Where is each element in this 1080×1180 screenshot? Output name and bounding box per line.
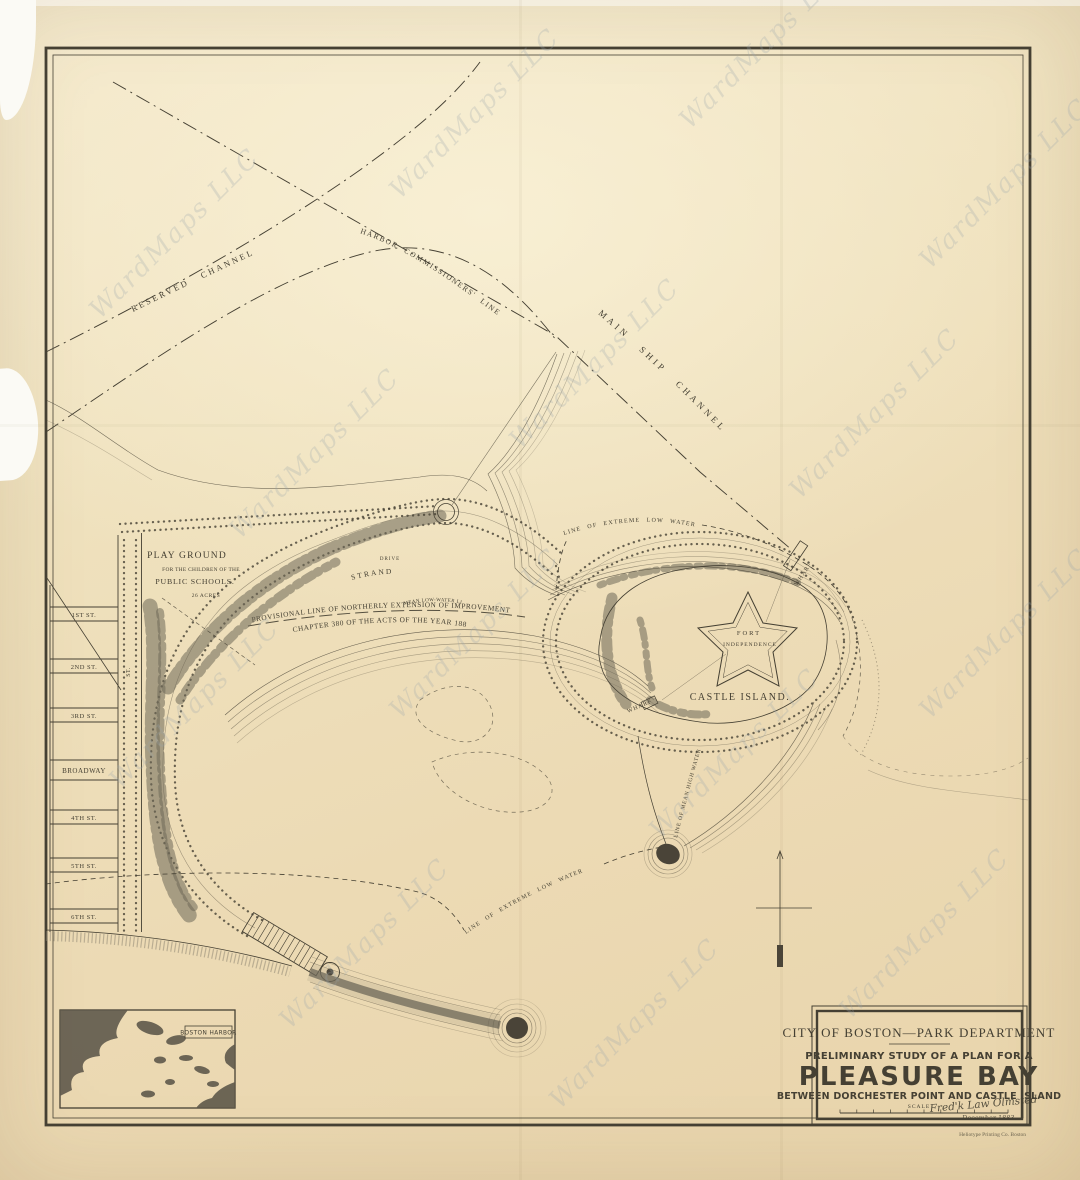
scale-label: SCALE	[908, 1104, 930, 1110]
street-label-4th: 4TH ST.	[71, 815, 97, 822]
title-subtitle: PRELIMINARY STUDY OF A PLAN FOR A	[805, 1051, 1033, 1062]
title-block: CITY OF BOSTON—PARK DEPARTMENT PRELIMINA…	[777, 1006, 1061, 1138]
svg-text:WardMaps LLC: WardMaps LLC	[914, 93, 1080, 275]
street-label-3rd: 3RD ST.	[71, 713, 97, 720]
extreme-low-water-south-label: LINE OF EXTREME LOW WATER	[464, 868, 585, 935]
svg-text:WardMaps LLC: WardMaps LLC	[834, 843, 1016, 1025]
foliage-plantings	[150, 516, 798, 916]
street-label-5th: 5TH ST.	[71, 863, 97, 870]
provisional-line-label-2: CHAPTER 380 OF THE ACTS OF THE YEAR 1883…	[0, 0, 468, 634]
title-department: CITY OF BOSTON—PARK DEPARTMENT	[783, 1025, 1056, 1040]
street-label-2nd: 2ND ST.	[71, 664, 98, 671]
shoreline-northwest	[46, 400, 487, 491]
inset-label: BOSTON HARBOR	[180, 1031, 236, 1037]
inset-map: BOSTON HARBOR	[60, 1010, 237, 1108]
street-label-1st: 1ST ST.	[72, 612, 97, 619]
survey-cross	[756, 851, 812, 967]
svg-text:WardMaps LLC: WardMaps LLC	[384, 23, 566, 205]
svg-text:WardMaps LLC: WardMaps LLC	[224, 363, 406, 545]
playground-title: PLAY GROUND	[147, 551, 227, 561]
channel-lines: RESERVED CHANNEL HARBOR COMMISSIONERS' L…	[46, 62, 792, 550]
drive-label: DRIVE	[380, 557, 400, 562]
playground-line2: FOR THE CHILDREN OF THE	[162, 567, 240, 573]
fort-label-line1: FORT	[737, 630, 761, 637]
strand-label: STRAND	[350, 567, 393, 582]
strand-boulevard: STRAND DRIVE	[151, 499, 564, 936]
playground-line3: PUBLIC SCHOOLS.	[155, 577, 234, 586]
svg-text:WardMaps LLC: WardMaps LLC	[384, 543, 566, 725]
harbor-commissioners-label: HARBOR COMMISSIONERS' LINE	[359, 226, 502, 317]
svg-text:WardMaps LLC: WardMaps LLC	[104, 613, 286, 795]
svg-text:WardMaps LLC: WardMaps LLC	[644, 663, 826, 845]
spit-south-of-island: LINE OF MEAN HIGH WATER	[638, 702, 832, 878]
svg-text:WardMaps LLC: WardMaps LLC	[914, 543, 1080, 725]
svg-text:WardMaps LLC: WardMaps LLC	[674, 0, 856, 135]
rock-islet	[653, 840, 682, 867]
svg-text:WardMaps LLC: WardMaps LLC	[544, 933, 726, 1115]
playground-acres: 26 ACRES	[192, 593, 221, 599]
street-label-6th: 6TH ST.	[71, 914, 97, 921]
svg-text:WardMaps LLC: WardMaps LLC	[84, 143, 266, 325]
svg-text:WardMaps LLC: WardMaps LLC	[784, 323, 966, 505]
inset-land	[60, 1010, 235, 1108]
map-drawing: RESERVED CHANNEL HARBOR COMMISSIONERS' L…	[0, 0, 1080, 1180]
fort-independence: FORT INDEPENDENCE	[698, 592, 797, 686]
watermarks: WardMaps LLC WardMaps LLC WardMaps LLC W…	[84, 0, 1080, 1115]
street-label-broadway: BROADWAY	[62, 767, 106, 775]
signature-date: December 1883.	[961, 1114, 1017, 1122]
imprint: Heliotype Printing Co. Boston	[959, 1132, 1026, 1138]
street-label-vertical: ST.	[126, 667, 132, 677]
fort-label-line2: INDEPENDENCE	[723, 642, 777, 648]
breakwater-head	[506, 1017, 528, 1039]
map-sheet: RESERVED CHANNEL HARBOR COMMISSIONERS' L…	[0, 0, 1080, 1180]
title-main: PLEASURE BAY	[799, 1062, 1039, 1092]
street-grid: 1ST ST. 2ND ST. 3RD ST. BROADWAY 4TH ST.…	[47, 533, 142, 933]
